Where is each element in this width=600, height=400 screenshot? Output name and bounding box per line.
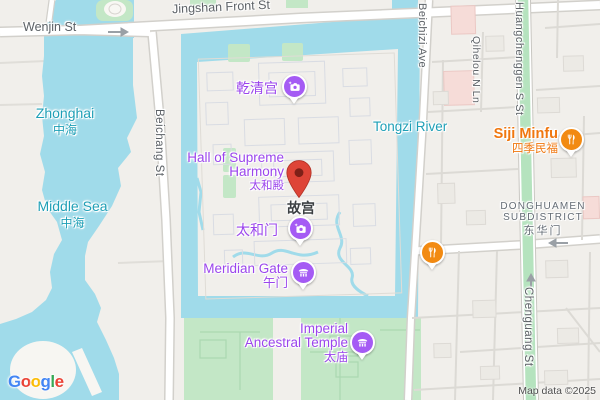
- logo-letter: G: [8, 372, 21, 391]
- pin-qianqing-palace[interactable]: [282, 74, 307, 106]
- logo-letter: o: [21, 372, 31, 391]
- pin-imperial-ancestral-temple[interactable]: [350, 330, 375, 362]
- logo-letter: e: [55, 372, 64, 391]
- zhonghai-zh: 中海: [30, 121, 100, 138]
- logo-letter: g: [41, 372, 51, 391]
- hsh-line2: Harmony: [150, 165, 284, 179]
- map-canvas[interactable]: Jingshan Front St Wenjin St Beichang St …: [0, 0, 600, 400]
- poi-label-imperial-ancestral-temple[interactable]: Imperial Ancestral Temple 太庙: [224, 322, 348, 364]
- google-logo[interactable]: Google: [8, 372, 64, 392]
- water-label-middle-sea: Middle Sea 中海: [35, 198, 110, 231]
- temple-icon: [350, 330, 375, 355]
- restaurant-icon: [559, 127, 584, 152]
- street-label-wenjin: Wenjin St: [23, 20, 76, 34]
- camera-icon: [282, 74, 307, 99]
- water-label-tongzi-river: Tongzi River: [373, 119, 447, 134]
- iat-line1: Imperial: [224, 322, 348, 336]
- pin-gate-of-supreme-harmony[interactable]: [288, 216, 313, 248]
- middle-sea-en: Middle Sea: [35, 198, 110, 214]
- pin-siji-minfu[interactable]: [559, 127, 584, 159]
- meridian-gate-en: Meridian Gate: [170, 262, 288, 276]
- iat-line2: Ancestral Temple: [224, 336, 348, 350]
- street-label-qihelou: Qihelou N Ln: [470, 36, 482, 103]
- street-label-huangchenggen: Huangchenggen S St: [513, 2, 525, 116]
- siji-minfu-en: Siji Minfu: [470, 127, 558, 142]
- pin-meridian-gate[interactable]: [291, 260, 316, 292]
- hsh-zh: 太和殿: [150, 179, 284, 193]
- district-label-donghuamen: DONGHUAMEN SUBDISTRICT 东华门: [483, 201, 600, 237]
- zhonghai-en: Zhonghai: [30, 105, 100, 121]
- poi-label-siji-minfu[interactable]: Siji Minfu 四季民福: [470, 127, 558, 157]
- temple-icon: [291, 260, 316, 285]
- district-zh: 东华门: [483, 226, 600, 237]
- camera-icon: [288, 216, 313, 241]
- meridian-gate-zh: 午门: [170, 276, 288, 290]
- iat-zh: 太庙: [224, 350, 348, 364]
- destination-pin[interactable]: [286, 160, 312, 203]
- middle-sea-zh: 中海: [35, 214, 110, 231]
- district-line2: SUBDISTRICT: [483, 212, 600, 223]
- poi-label-qianqing-palace[interactable]: 乾清宫: [236, 78, 278, 98]
- water-label-zhonghai: Zhonghai 中海: [30, 105, 100, 138]
- map-attribution: Map data ©2025: [518, 385, 596, 397]
- restaurant-icon: [420, 240, 445, 265]
- street-label-chenguang: Chenguang St: [522, 287, 534, 367]
- street-label-beichizi: Beichizi Ave: [416, 3, 428, 68]
- siji-minfu-zh: 四季民福: [470, 142, 558, 157]
- hsh-line1: Hall of Supreme: [150, 151, 284, 165]
- pin-restaurant[interactable]: [420, 240, 445, 272]
- district-line1: DONGHUAMEN: [483, 201, 600, 212]
- logo-letter: o: [31, 372, 41, 391]
- poi-label-meridian-gate[interactable]: Meridian Gate 午门: [170, 262, 288, 290]
- poi-label-gate-of-supreme-harmony[interactable]: 太和门: [236, 220, 278, 240]
- poi-label-hall-of-supreme-harmony[interactable]: Hall of Supreme Harmony 太和殿: [150, 151, 284, 193]
